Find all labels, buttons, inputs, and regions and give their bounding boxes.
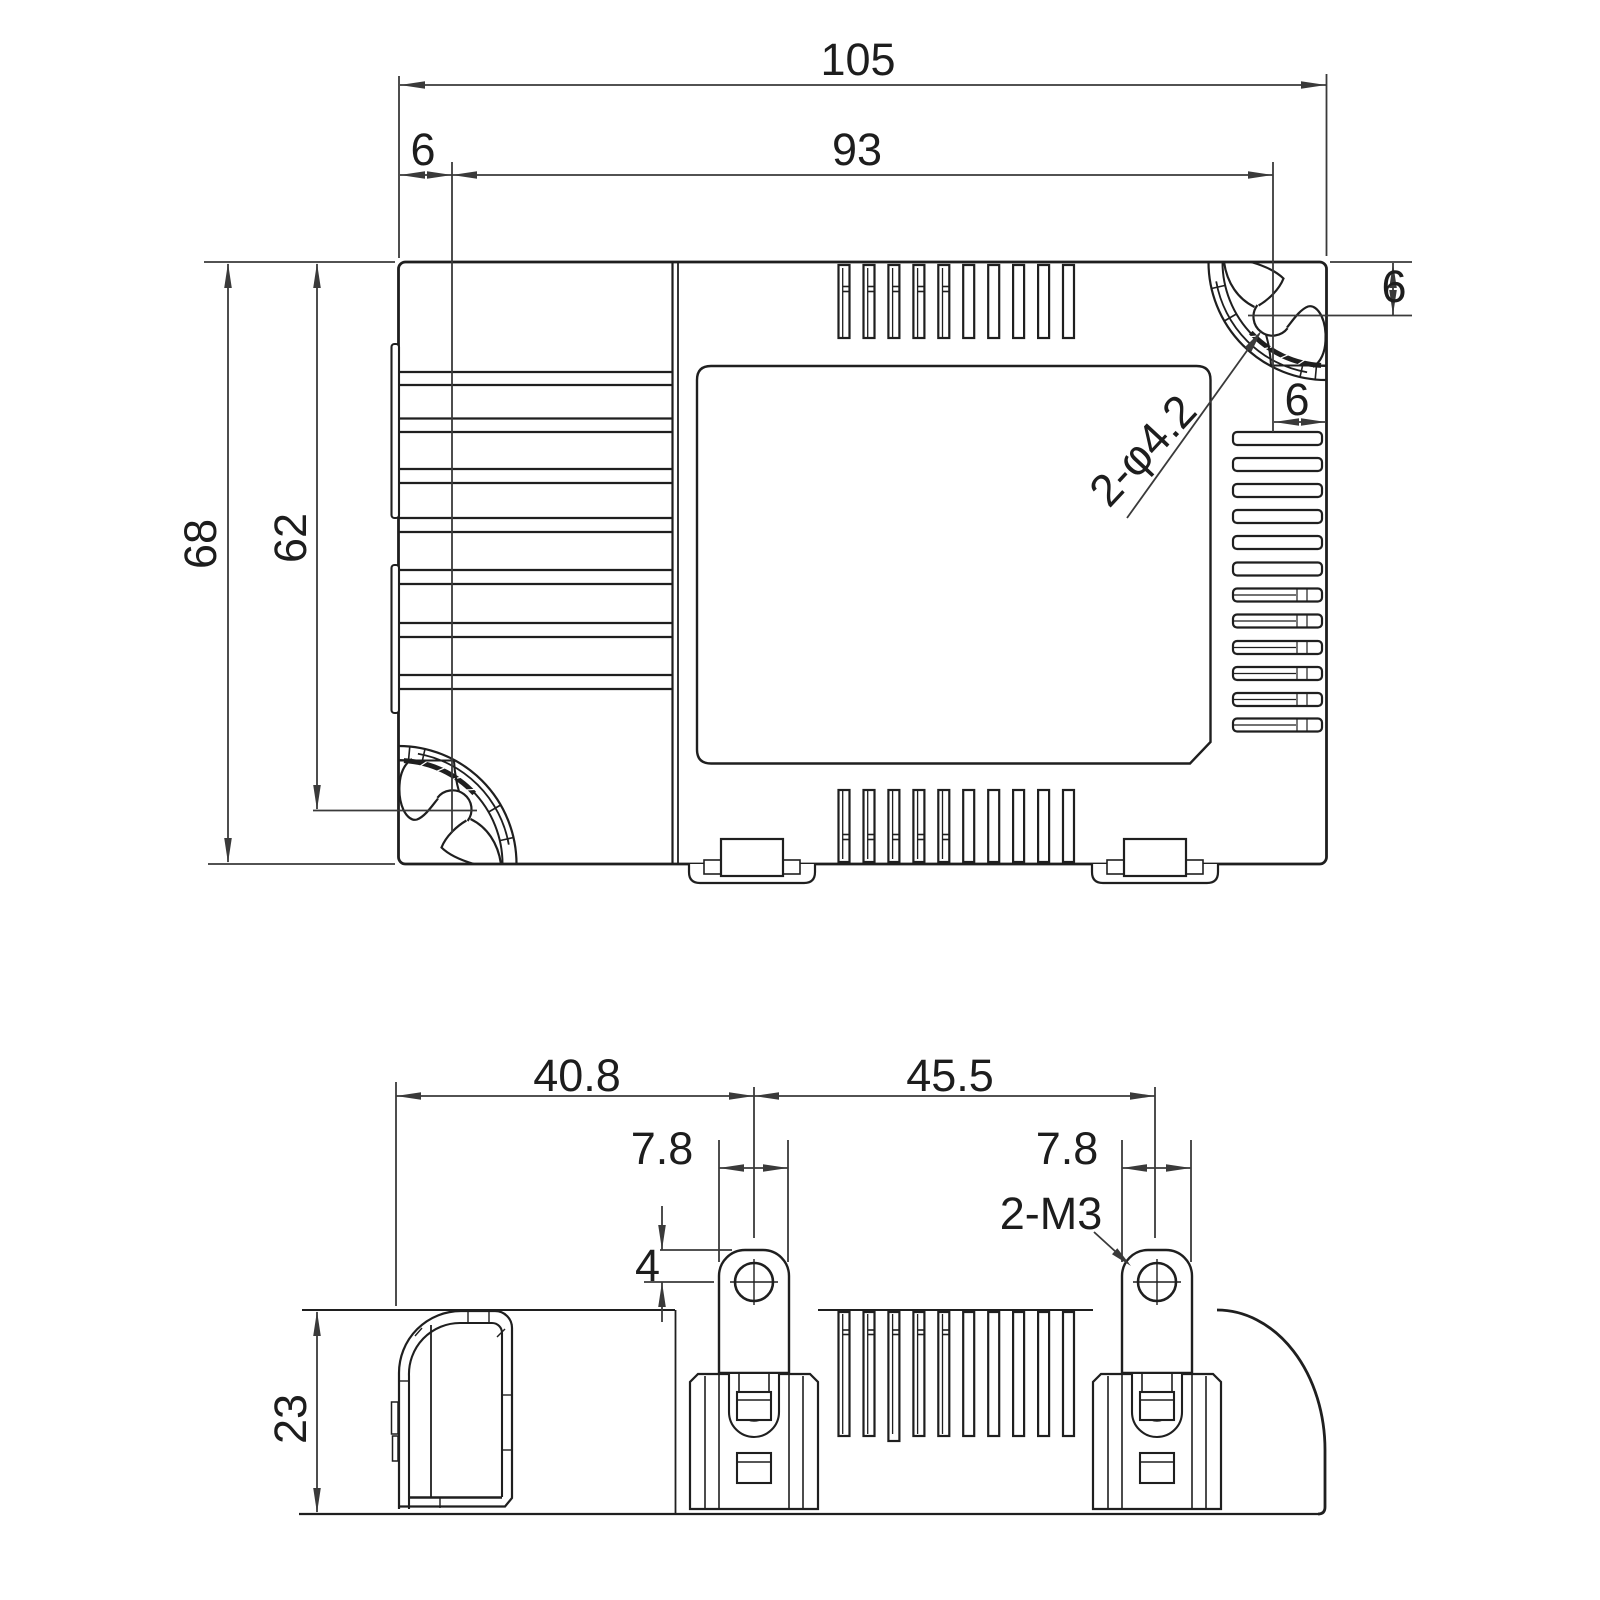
svg-text:7.8: 7.8 [631,1123,694,1174]
svg-text:2-M3: 2-M3 [1000,1188,1103,1239]
svg-text:105: 105 [820,34,895,85]
svg-text:45.5: 45.5 [906,1050,994,1101]
svg-text:6: 6 [1381,261,1406,312]
svg-text:68: 68 [175,519,226,569]
svg-text:62: 62 [265,513,316,563]
svg-text:93: 93 [832,124,882,175]
svg-text:40.8: 40.8 [533,1050,621,1101]
svg-text:4: 4 [635,1240,660,1291]
svg-text:6: 6 [1284,374,1309,425]
svg-text:23: 23 [265,1394,316,1444]
svg-text:6: 6 [410,124,435,175]
svg-text:7.8: 7.8 [1036,1123,1099,1174]
